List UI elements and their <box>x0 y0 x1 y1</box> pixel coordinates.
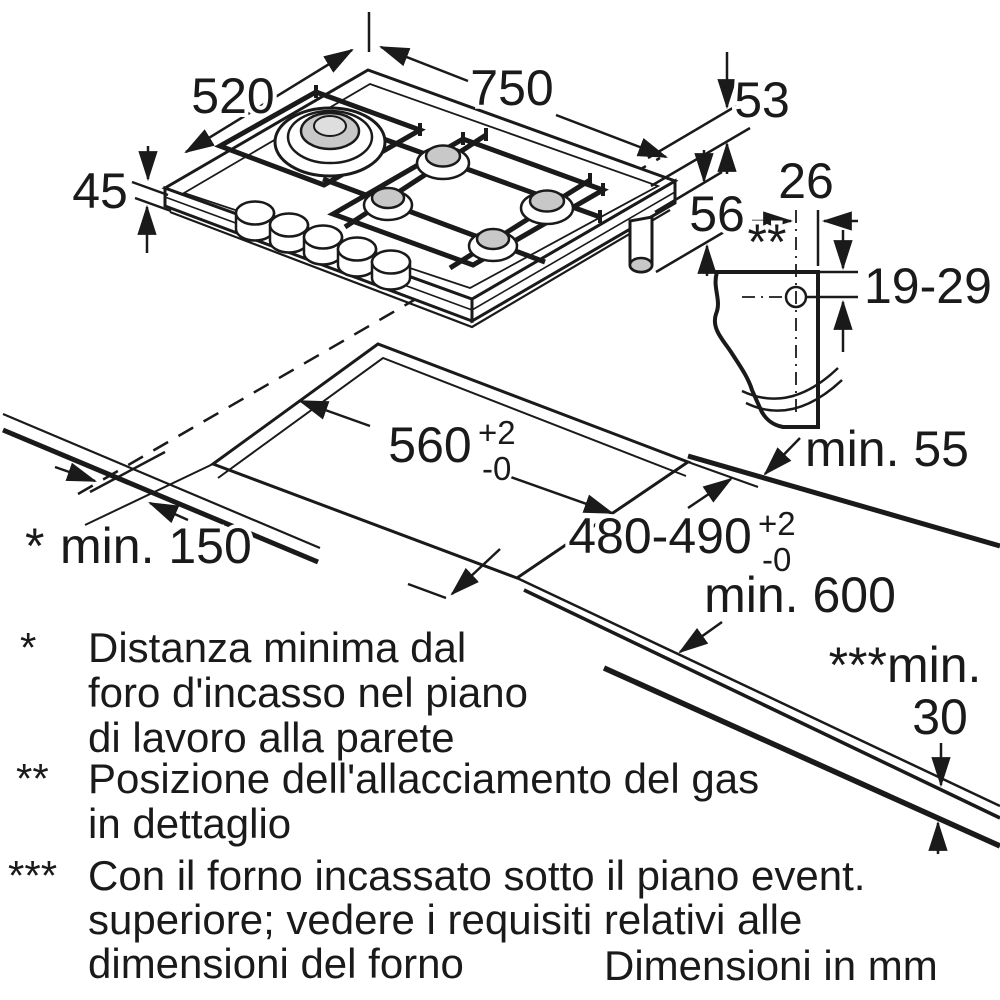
label-hob-height-front: 45 <box>72 163 128 219</box>
cutout-depth-arrow-a <box>688 479 731 508</box>
min600-arrow <box>680 622 722 652</box>
label-gas-marker: ** <box>748 214 787 270</box>
label-wall-marker: * <box>25 518 44 574</box>
footnote-line: dimensioni del forno <box>88 940 464 987</box>
cutout-depth-tick <box>408 584 446 598</box>
control-knob <box>270 214 308 253</box>
footnote-marker-1: * <box>20 624 36 671</box>
dim53-ext-a <box>648 99 748 158</box>
label-worktop-depth: min. 600 <box>704 567 896 623</box>
label-oven-gap: ***min. <box>829 637 982 693</box>
label-hob-width: 750 <box>470 60 553 116</box>
label-hob-height-right: 53 <box>734 72 790 128</box>
footnote-line: superiore; vedere i requisiti relativi a… <box>88 896 802 943</box>
label-hob-depth: 520 <box>191 68 274 124</box>
footnote-line: Distanza minima dal <box>88 624 466 671</box>
label-oven-gap-value: 30 <box>912 689 968 745</box>
dim750-line-a <box>381 47 468 81</box>
footnote-line: Posizione dell'allacciamento del gas <box>88 755 759 802</box>
control-knob <box>236 202 274 241</box>
label-cutout-depth: 480-490 <box>568 508 752 564</box>
label-cutout-width-minus: -0 <box>482 450 511 487</box>
label-cutout-width-plus: +2 <box>478 414 516 451</box>
burner <box>521 191 573 225</box>
label-hob-height-gas: 56 <box>689 186 745 242</box>
control-knob <box>338 238 376 277</box>
burner <box>417 146 469 180</box>
control-knob <box>304 226 342 265</box>
footnotes: * Distanza minima dal foro d'incasso nel… <box>8 624 865 987</box>
min55-arrow <box>765 438 800 474</box>
gas-pipe <box>630 217 652 272</box>
footnote-marker-2: ** <box>16 755 49 802</box>
label-cutout-width: 560 <box>388 417 471 473</box>
footnote-line: di lavoro alla parete <box>88 714 455 761</box>
units-note: Dimensioni in mm <box>604 942 938 989</box>
footnote-line: in dettaglio <box>88 800 291 847</box>
label-gas-height-range: 19-29 <box>864 258 992 314</box>
installation-diagram: 750 520 45 53 56 26 ** 19-29 560 +2 -0 4… <box>0 0 1000 1000</box>
diagram-canvas: 750 520 45 53 56 26 ** 19-29 560 +2 -0 4… <box>0 0 1000 1000</box>
label-gas-offset: 26 <box>778 153 834 209</box>
label-side-clearance: min. 55 <box>805 421 969 477</box>
burner-large <box>275 108 385 176</box>
footnote-line: foro d'incasso nel piano <box>88 669 528 716</box>
control-knob <box>372 251 410 290</box>
footnote-marker-3: *** <box>8 852 57 899</box>
label-cutout-depth-plus: +2 <box>758 505 796 542</box>
min150-arrow-left <box>55 467 95 481</box>
label-wall-clearance: min. 150 <box>60 518 252 574</box>
footnote-line: Con il forno incassato sotto il piano ev… <box>88 852 865 899</box>
